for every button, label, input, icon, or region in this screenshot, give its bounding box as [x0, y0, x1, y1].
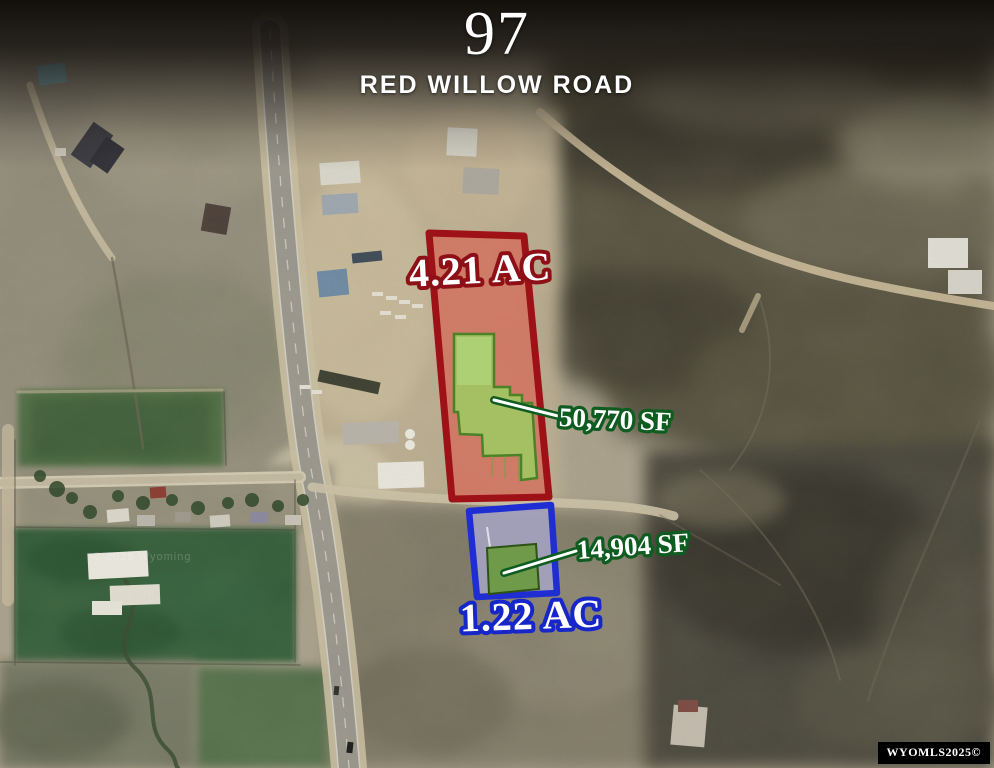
red-parcel-acreage-label: 4.21 AC — [408, 243, 553, 295]
street-name: RED WILLOW ROAD — [0, 71, 994, 100]
mls-watermark-badge: WYOMLS2025© — [878, 742, 990, 764]
street-number: 97 — [0, 2, 994, 67]
large-building-sf-label: 50,770 SF — [558, 402, 672, 437]
large-building-roof-highlight — [457, 337, 491, 385]
map-overlay: 4.21 AC 50,770 SF 14,904 SF 1.22 AC — [0, 0, 994, 768]
aerial-listing-photo: 4.21 AC 50,770 SF 14,904 SF 1.22 AC 97 R… — [0, 0, 994, 768]
blue-parcel-acreage-label: 1.22 AC — [459, 591, 603, 641]
imagery-watermark: © 2025 Wyoming — [93, 551, 191, 563]
